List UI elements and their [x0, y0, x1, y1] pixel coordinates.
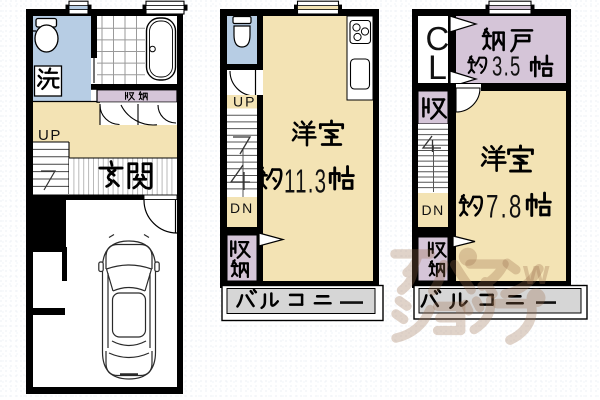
svg-text:w: w — [522, 254, 550, 292]
svg-text:7.8: 7.8 — [486, 189, 523, 225]
svg-text:11.3: 11.3 — [284, 162, 327, 199]
svg-text:L: L — [428, 49, 447, 87]
svg-text:DN: DN — [422, 202, 445, 218]
svg-text:UP: UP — [233, 94, 256, 110]
svg-text:DN: DN — [230, 200, 254, 216]
svg-text:3.5: 3.5 — [492, 52, 522, 83]
